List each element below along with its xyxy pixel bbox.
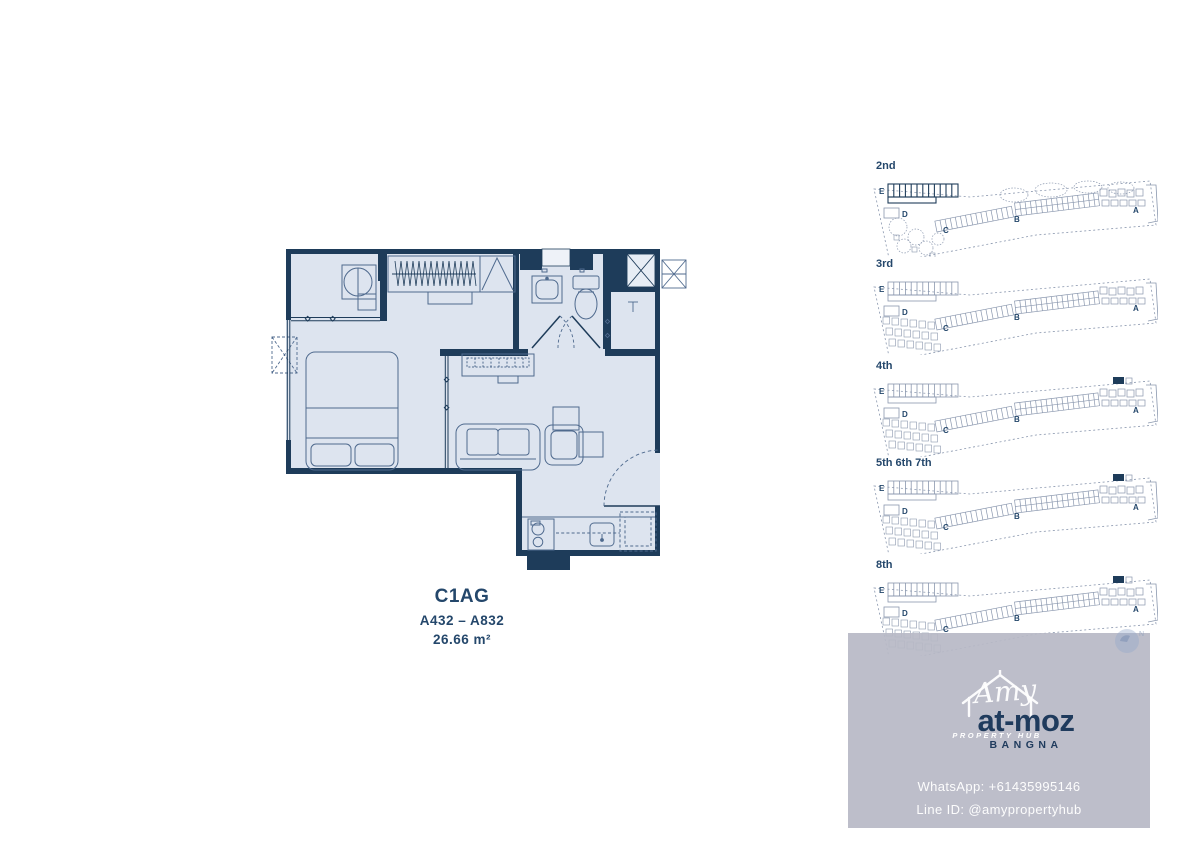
section-letter: A <box>1133 503 1139 512</box>
section-letter: A <box>1133 206 1139 215</box>
section-letter: B <box>1014 415 1020 424</box>
unit-label-block: C1AG A432 – A832 26.66 m² <box>352 586 572 647</box>
unit-type-code: C1AG <box>352 586 572 608</box>
building-key-plan: EDCBA <box>866 472 1158 554</box>
unit-number-range: A432 – A832 <box>352 613 572 628</box>
section-letter: E <box>879 586 885 595</box>
highlighted-unit <box>1113 377 1124 384</box>
unit-area: 26.66 m² <box>352 632 572 647</box>
section-letter: C <box>943 523 949 532</box>
key-plan-row-5th-6th-7th: 5th 6th 7thEDCBA <box>866 457 1166 554</box>
brand-location: BANGNA <box>956 739 1096 751</box>
key-plan-row-2nd: 2ndEDCBA <box>866 160 1166 257</box>
section-letter: B <box>1014 313 1020 322</box>
building-key-plan: EDCBA <box>866 175 1158 257</box>
section-letter: A <box>1133 605 1139 614</box>
section-letter: A <box>1133 304 1139 313</box>
building-key-plan: EDCBA <box>866 273 1158 355</box>
watermark-script: Amy <box>959 672 1051 711</box>
section-letter: E <box>879 187 885 196</box>
section-letter: D <box>902 210 908 219</box>
floorplan-brochure-page: { "unit": { "title": "C1AG", "range": "A… <box>0 0 1200 848</box>
section-letter: D <box>902 410 908 419</box>
watermark-subtitle: PROPERTY HUB <box>937 731 1057 740</box>
section-letter: B <box>1014 512 1020 521</box>
floor-label: 3rd <box>866 258 1166 271</box>
highlighted-unit <box>1113 576 1124 583</box>
entry-recess <box>527 553 570 570</box>
section-letter: D <box>902 308 908 317</box>
section-letter: D <box>902 609 908 618</box>
floor-label: 5th 6th 7th <box>866 457 1166 470</box>
floor-label: 2nd <box>866 160 1166 173</box>
contact-line-id: Line ID: @amypropertyhub <box>848 802 1150 817</box>
compass-icon: N <box>1112 626 1146 656</box>
section-letter: A <box>1133 406 1139 415</box>
section-letter: E <box>879 484 885 493</box>
unit-floor-plan <box>270 240 690 570</box>
section-letter: E <box>879 387 885 396</box>
key-plan-row-4th: 4thEDCBA <box>866 360 1166 457</box>
section-letter: C <box>943 324 949 333</box>
ac-balcony <box>627 254 655 287</box>
key-plan-row-3rd: 3rdEDCBA <box>866 258 1166 355</box>
section-letter: B <box>1014 614 1020 623</box>
building-key-plan: EDCBA <box>866 375 1158 457</box>
floor-label: 8th <box>866 559 1166 572</box>
section-letter: C <box>943 226 949 235</box>
section-letter: E <box>879 285 885 294</box>
duct-shaft <box>542 249 570 266</box>
branding-overlay: Amy at-moz PROPERTY HUB BANGNA WhatsApp:… <box>848 633 1150 828</box>
highlighted-unit <box>1113 474 1124 481</box>
svg-text:N: N <box>1139 631 1144 638</box>
section-letter: D <box>902 507 908 516</box>
contact-whatsapp: WhatsApp: +61435995146 <box>848 779 1150 794</box>
floor-label: 4th <box>866 360 1166 373</box>
section-letter: C <box>943 426 949 435</box>
section-letter: B <box>1014 215 1020 224</box>
louver-shutter <box>662 260 686 288</box>
